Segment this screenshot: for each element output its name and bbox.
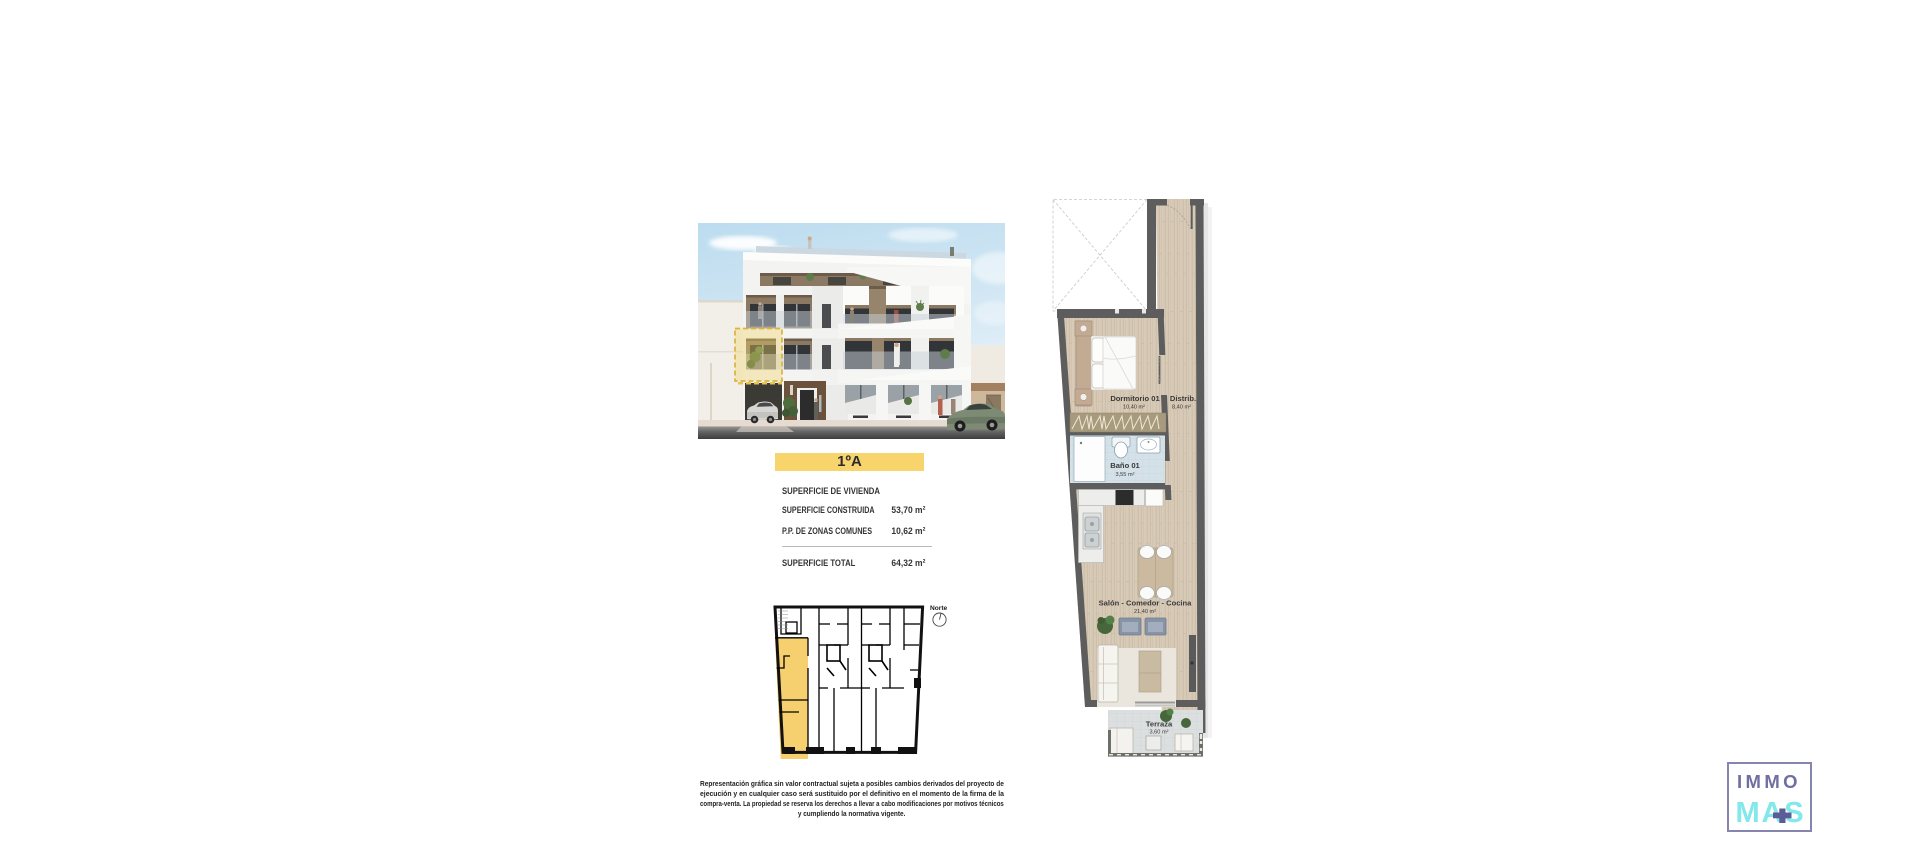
svg-text:MAS: MAS: [1736, 797, 1806, 829]
svg-text:Norte: Norte: [930, 605, 948, 612]
svg-text:10,40 m²: 10,40 m²: [1123, 405, 1145, 411]
svg-text:IMMO: IMMO: [1737, 771, 1801, 792]
svg-text:Dormitorio 01: Dormitorio 01: [1110, 394, 1160, 403]
svg-text:3,60 m²: 3,60 m²: [1150, 730, 1169, 736]
svg-text:Salón - Comedor - Cocina: Salón - Comedor - Cocina: [1099, 599, 1193, 608]
svg-text:Distrib.: Distrib.: [1170, 394, 1196, 403]
svg-text:Baño 01: Baño 01: [1110, 461, 1140, 470]
svg-text:Terraza: Terraza: [1146, 720, 1173, 729]
svg-text:21,40 m²: 21,40 m²: [1134, 609, 1156, 615]
svg-text:3,55 m²: 3,55 m²: [1116, 472, 1135, 478]
svg-text:8,40 m²: 8,40 m²: [1172, 405, 1191, 411]
